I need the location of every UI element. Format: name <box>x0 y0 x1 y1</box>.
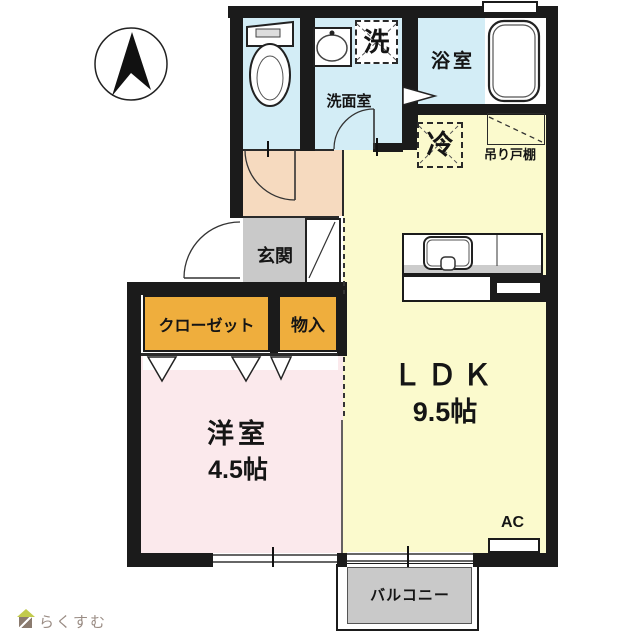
kitchen-counter <box>402 233 543 275</box>
shoe-cabinet <box>305 218 341 286</box>
wall-toilet-washroom <box>300 16 315 151</box>
washer-label: 洗 <box>355 20 398 64</box>
kitchen-return-wall <box>492 275 546 302</box>
wall-bottom-pier <box>337 553 347 567</box>
ac-label: AC <box>485 514 540 532</box>
wall-storage-right <box>337 282 347 356</box>
wall-left-upper <box>230 6 243 218</box>
storage-label: 物入 <box>278 311 338 336</box>
ldk-size-label: 9.5帖 <box>365 390 525 429</box>
house-body <box>19 617 32 628</box>
house-icon <box>17 608 35 628</box>
bathroom-window <box>482 1 538 14</box>
toilet-sill <box>243 149 300 151</box>
brand-text: らくすむ <box>39 611 107 632</box>
ldk-label: ＬＤＫ <box>365 352 525 394</box>
kitchen-lower-cabinet <box>402 275 492 302</box>
washroom-sill <box>315 149 334 151</box>
closet-door-track <box>143 356 338 370</box>
house-roof <box>17 609 35 617</box>
wall-bottom-west <box>127 553 213 567</box>
fridge-label: 冷 <box>417 122 463 168</box>
ac-unit-box <box>488 538 540 553</box>
entrance-label: 玄関 <box>243 242 307 268</box>
hallway-floor <box>243 150 342 216</box>
closet-track-line <box>141 353 338 356</box>
west-window-gap <box>213 553 337 564</box>
bathtub-panel <box>485 18 545 104</box>
wall-bottom-right <box>473 553 558 567</box>
compass-circle <box>95 28 167 100</box>
western-room-label: 洋室 <box>158 412 318 451</box>
entrance-door-arc <box>184 222 240 278</box>
washroom-label: 洗面室 <box>316 90 382 111</box>
floor-plan: 洗 洗面室 浴室 冷 吊り戸棚 玄関 クローゼット 物入 ＬＤＫ 9.5帖 洋室… <box>0 0 640 640</box>
brand-logo: らくすむ <box>17 608 137 632</box>
toilet-room-floor <box>243 18 300 150</box>
kitchen-pass-slot <box>497 283 540 293</box>
wall-washroom-right <box>402 16 418 150</box>
hanging-cupboard-label: 吊り戸棚 <box>472 144 548 163</box>
balcony-label: バルコニー <box>349 584 471 605</box>
hanging-cupboard-outline <box>487 113 545 145</box>
north-arrow-icon <box>112 32 151 96</box>
wall-closet-divider <box>270 295 278 353</box>
closet-label: クローゼット <box>143 312 270 336</box>
wall-right <box>546 6 558 567</box>
wall-left-lower <box>127 282 141 567</box>
western-room-size-label: 4.5帖 <box>158 450 318 486</box>
wall-washroom-bottom-chunk <box>373 143 403 152</box>
hall-ldk-partition <box>342 150 344 216</box>
hall-step-line <box>243 216 339 218</box>
wall-closet-top <box>127 282 347 295</box>
counter-edge-band <box>404 265 541 273</box>
bathroom-label: 浴室 <box>421 46 485 73</box>
